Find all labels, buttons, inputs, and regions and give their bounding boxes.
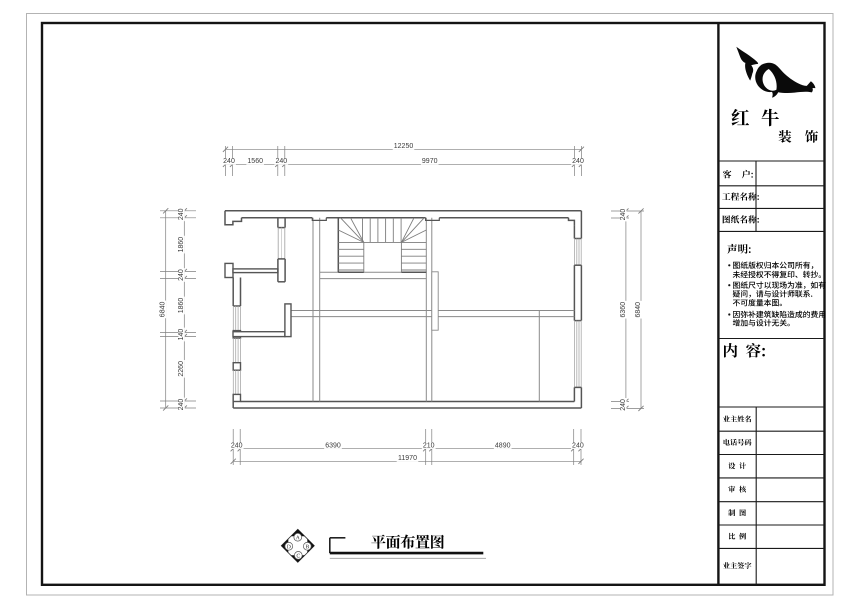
svg-text:9970: 9970 — [422, 158, 438, 165]
svg-text:6840: 6840 — [635, 302, 642, 318]
svg-text:4890: 4890 — [495, 442, 511, 449]
svg-text:240: 240 — [620, 209, 627, 221]
svg-text:240: 240 — [275, 158, 287, 165]
svg-text:140: 140 — [178, 329, 185, 341]
svg-text:1560: 1560 — [247, 158, 263, 165]
svg-text:1860: 1860 — [178, 298, 185, 314]
svg-text:210: 210 — [423, 442, 435, 449]
svg-text:6840: 6840 — [160, 302, 167, 318]
svg-text:6390: 6390 — [325, 442, 341, 449]
svg-text:1860: 1860 — [178, 237, 185, 253]
svg-text:2260: 2260 — [178, 361, 185, 377]
svg-text:12250: 12250 — [394, 143, 414, 150]
svg-text:240: 240 — [572, 442, 584, 449]
svg-text:240: 240 — [178, 399, 185, 411]
svg-text:240: 240 — [178, 208, 185, 220]
svg-text:11970: 11970 — [398, 455, 417, 462]
svg-text:240: 240 — [178, 269, 185, 281]
svg-text:240: 240 — [572, 158, 584, 165]
svg-text:6360: 6360 — [620, 302, 627, 318]
svg-text:240: 240 — [223, 158, 235, 165]
svg-text:240: 240 — [620, 399, 627, 411]
svg-text:240: 240 — [231, 442, 243, 449]
